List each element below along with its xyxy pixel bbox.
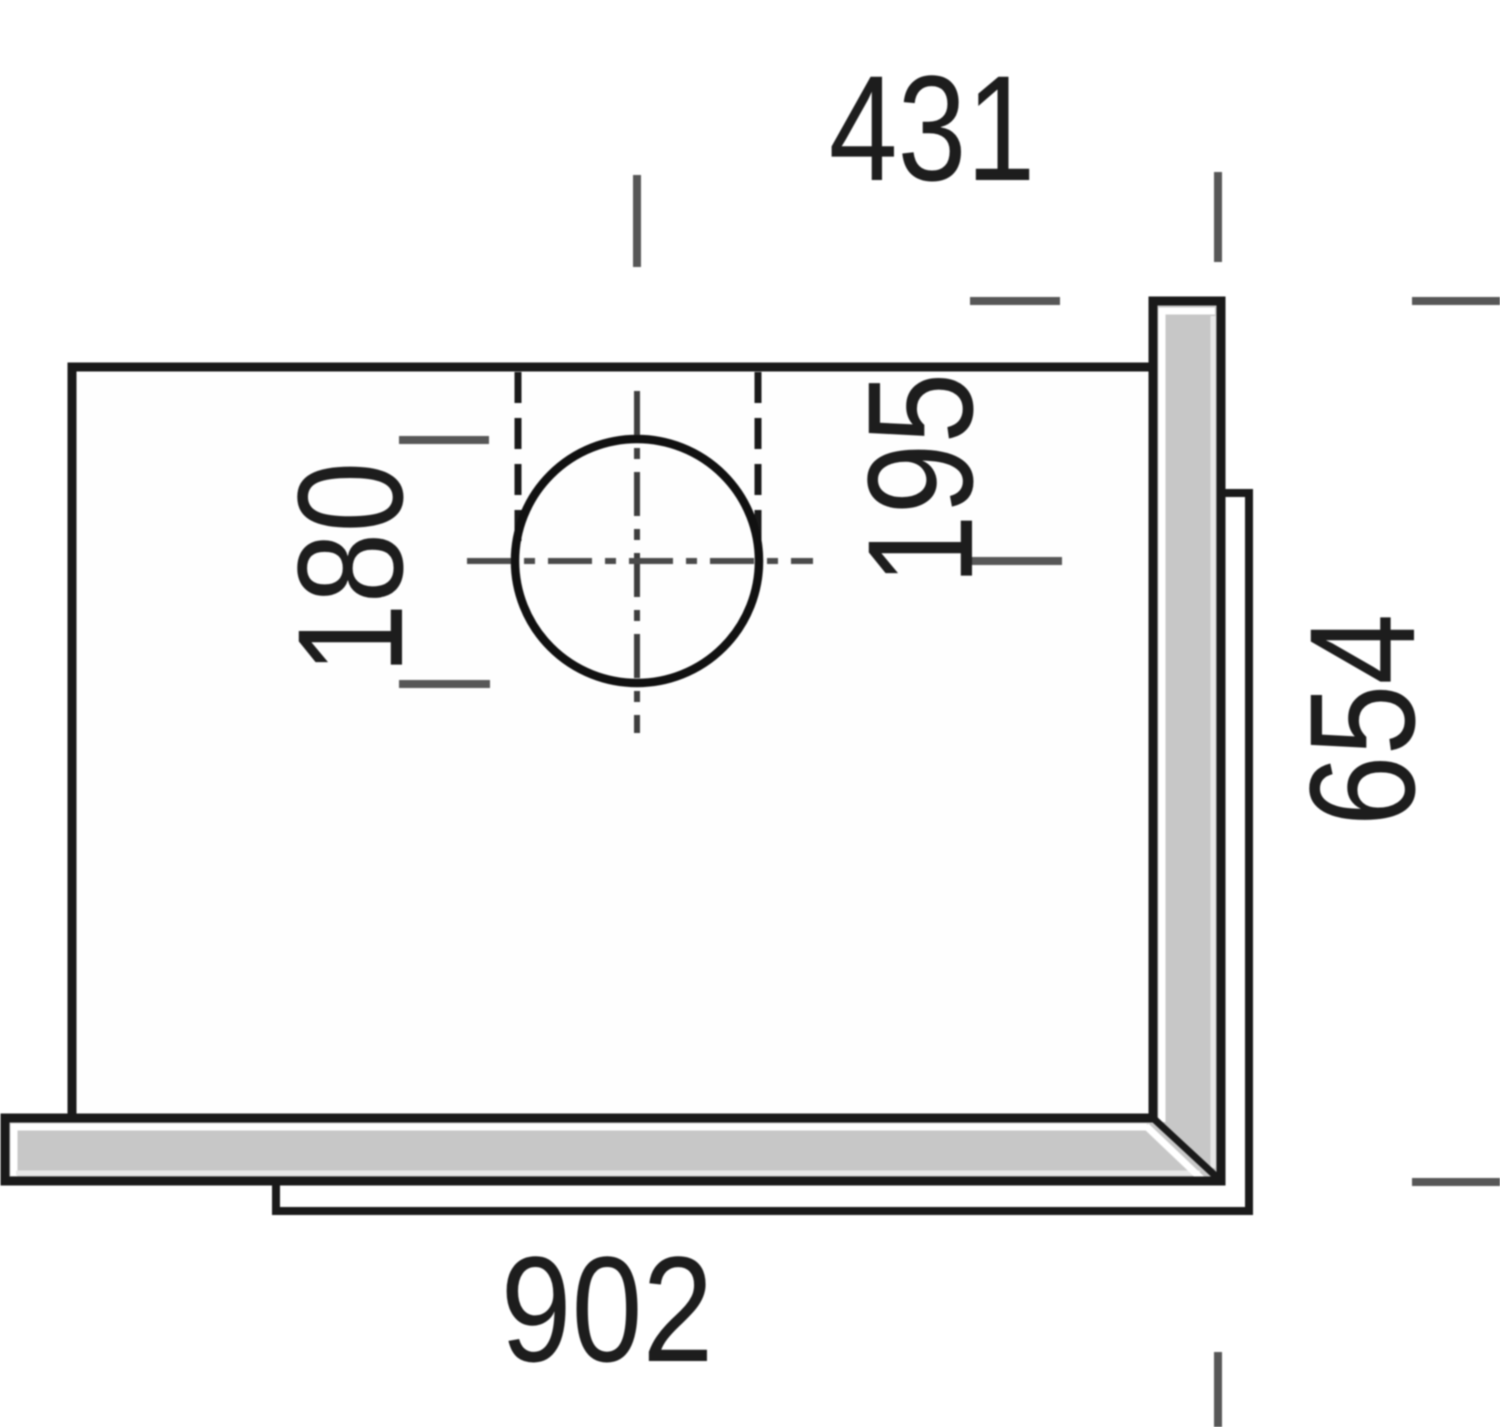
svg-text:431: 431 xyxy=(829,46,1035,213)
svg-text:654: 654 xyxy=(1279,614,1446,827)
svg-text:180: 180 xyxy=(267,462,434,675)
svg-text:195: 195 xyxy=(837,373,1004,586)
svg-text:902: 902 xyxy=(501,1226,714,1393)
